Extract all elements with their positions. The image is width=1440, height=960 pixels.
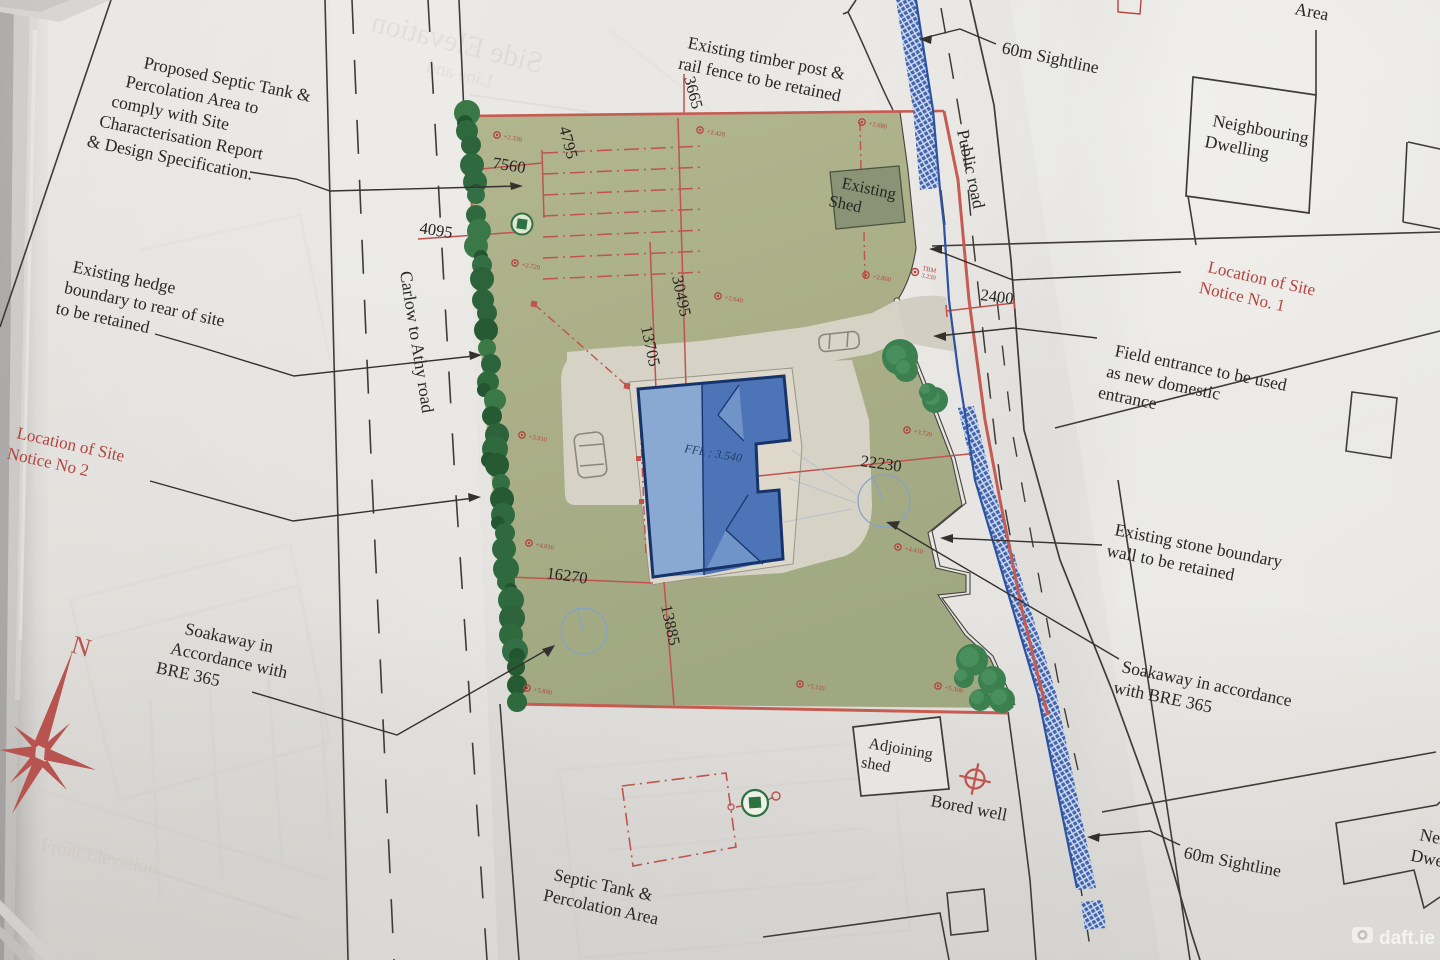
svg-text:2400: 2400 bbox=[980, 285, 1015, 308]
svg-text:daft.ie: daft.ie bbox=[1379, 928, 1435, 949]
